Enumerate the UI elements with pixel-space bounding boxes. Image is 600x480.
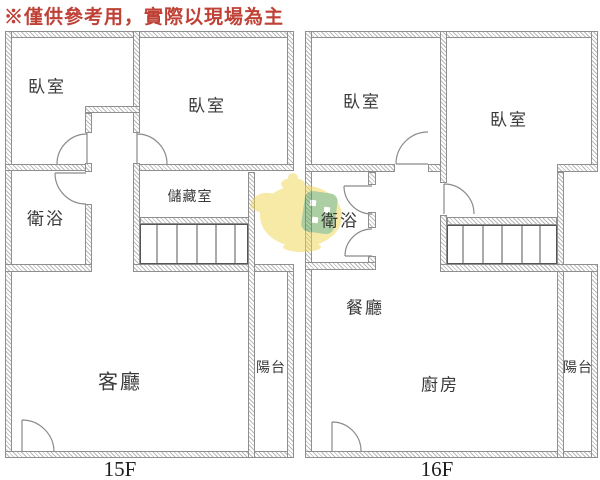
floor-plan-canvas: ※僅供參考用，實際以現場為主 bbox=[0, 0, 600, 480]
floor-label-15f: 15F bbox=[104, 457, 137, 480]
room-label-16f-kitchen: 廚房 bbox=[421, 371, 459, 396]
room-label-16f-bathroom: 衛浴 bbox=[321, 207, 359, 232]
room-label-16f-dining: 餐廳 bbox=[346, 294, 384, 319]
door-arcs-16f bbox=[332, 132, 474, 451]
room-label-16f-bedroom-right: 臥室 bbox=[490, 106, 528, 131]
room-label-15f-bedroom-right: 臥室 bbox=[188, 92, 226, 117]
room-label-15f-bedroom-left: 臥室 bbox=[28, 73, 66, 98]
room-label-15f-living-room: 客廳 bbox=[98, 366, 142, 395]
room-label-15f-storage: 儲藏室 bbox=[168, 186, 213, 206]
floor-label-16f: 16F bbox=[421, 457, 454, 480]
doors-stairs-overlay bbox=[0, 0, 600, 480]
room-label-15f-bathroom: 衛浴 bbox=[27, 205, 65, 230]
door-arcs-15f bbox=[22, 133, 167, 452]
disclaimer-text: ※僅供參考用，實際以現場為主 bbox=[4, 2, 284, 29]
room-label-16f-balcony: 陽台 bbox=[563, 357, 593, 377]
stairs-16f bbox=[448, 226, 557, 264]
room-label-16f-bedroom-left: 臥室 bbox=[343, 88, 381, 113]
room-label-15f-balcony: 陽台 bbox=[256, 357, 286, 377]
stairs-15f bbox=[141, 225, 248, 264]
